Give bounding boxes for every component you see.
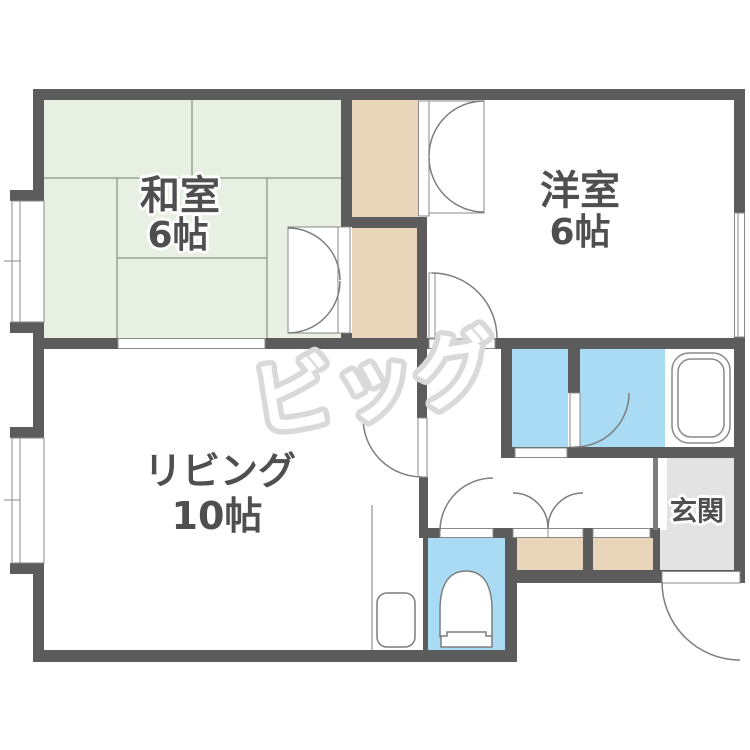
threshold-shoe-closet	[593, 529, 650, 538]
washitsu-closet-doors	[288, 227, 338, 333]
entrance-step	[658, 458, 667, 530]
toilet-door-arc	[440, 478, 493, 531]
sink-icon	[372, 505, 415, 650]
threshold-washroom	[515, 448, 567, 458]
entrance-door-leaf	[662, 572, 740, 584]
floor-plan-drawing: ビッグ	[0, 0, 750, 750]
bathtub-icon	[672, 353, 730, 443]
bathroom-floor	[580, 349, 665, 447]
room-label-genkan: 玄関	[670, 499, 724, 526]
hall-closet-arc-right	[548, 493, 583, 528]
room-label-youshitsu: 洋室	[540, 171, 620, 211]
room-size-washitsu: 6帖	[147, 218, 208, 254]
floor-plan: ビッグ 和室 6帖 洋室 6帖 リビング 10帖 玄関	[0, 0, 750, 750]
sliding-opening-washitsu-living	[118, 339, 265, 349]
hall-closet-a-floor	[513, 538, 583, 570]
bathroom-door-leaf	[570, 393, 580, 447]
room-label-washitsu: 和室	[140, 176, 220, 216]
hall-closet-door-leaf-right	[548, 529, 583, 538]
room-size-living: 10帖	[172, 497, 263, 535]
hall-closet-door-leaf-left	[513, 529, 548, 538]
washroom-floor	[512, 349, 568, 447]
room-size-youshitsu: 6帖	[549, 215, 610, 251]
toilet-door-leaf	[440, 529, 493, 538]
entrance-door-arc	[662, 582, 740, 660]
closet-floor-bottom	[352, 228, 417, 338]
living-door-leaf	[418, 418, 427, 477]
hall-closet-arc-left	[513, 493, 548, 528]
room-label-living: リビング	[144, 452, 296, 490]
toilet-icon	[440, 571, 492, 647]
window-washitsu	[4, 201, 44, 322]
youshitsu-closet-doors	[429, 101, 484, 213]
window-living	[4, 438, 44, 563]
hall-closet-b-floor	[593, 538, 653, 570]
closet-floor-top	[352, 100, 418, 217]
youshitsu-closet-face	[419, 101, 430, 216]
window-youshitsu	[735, 213, 745, 337]
